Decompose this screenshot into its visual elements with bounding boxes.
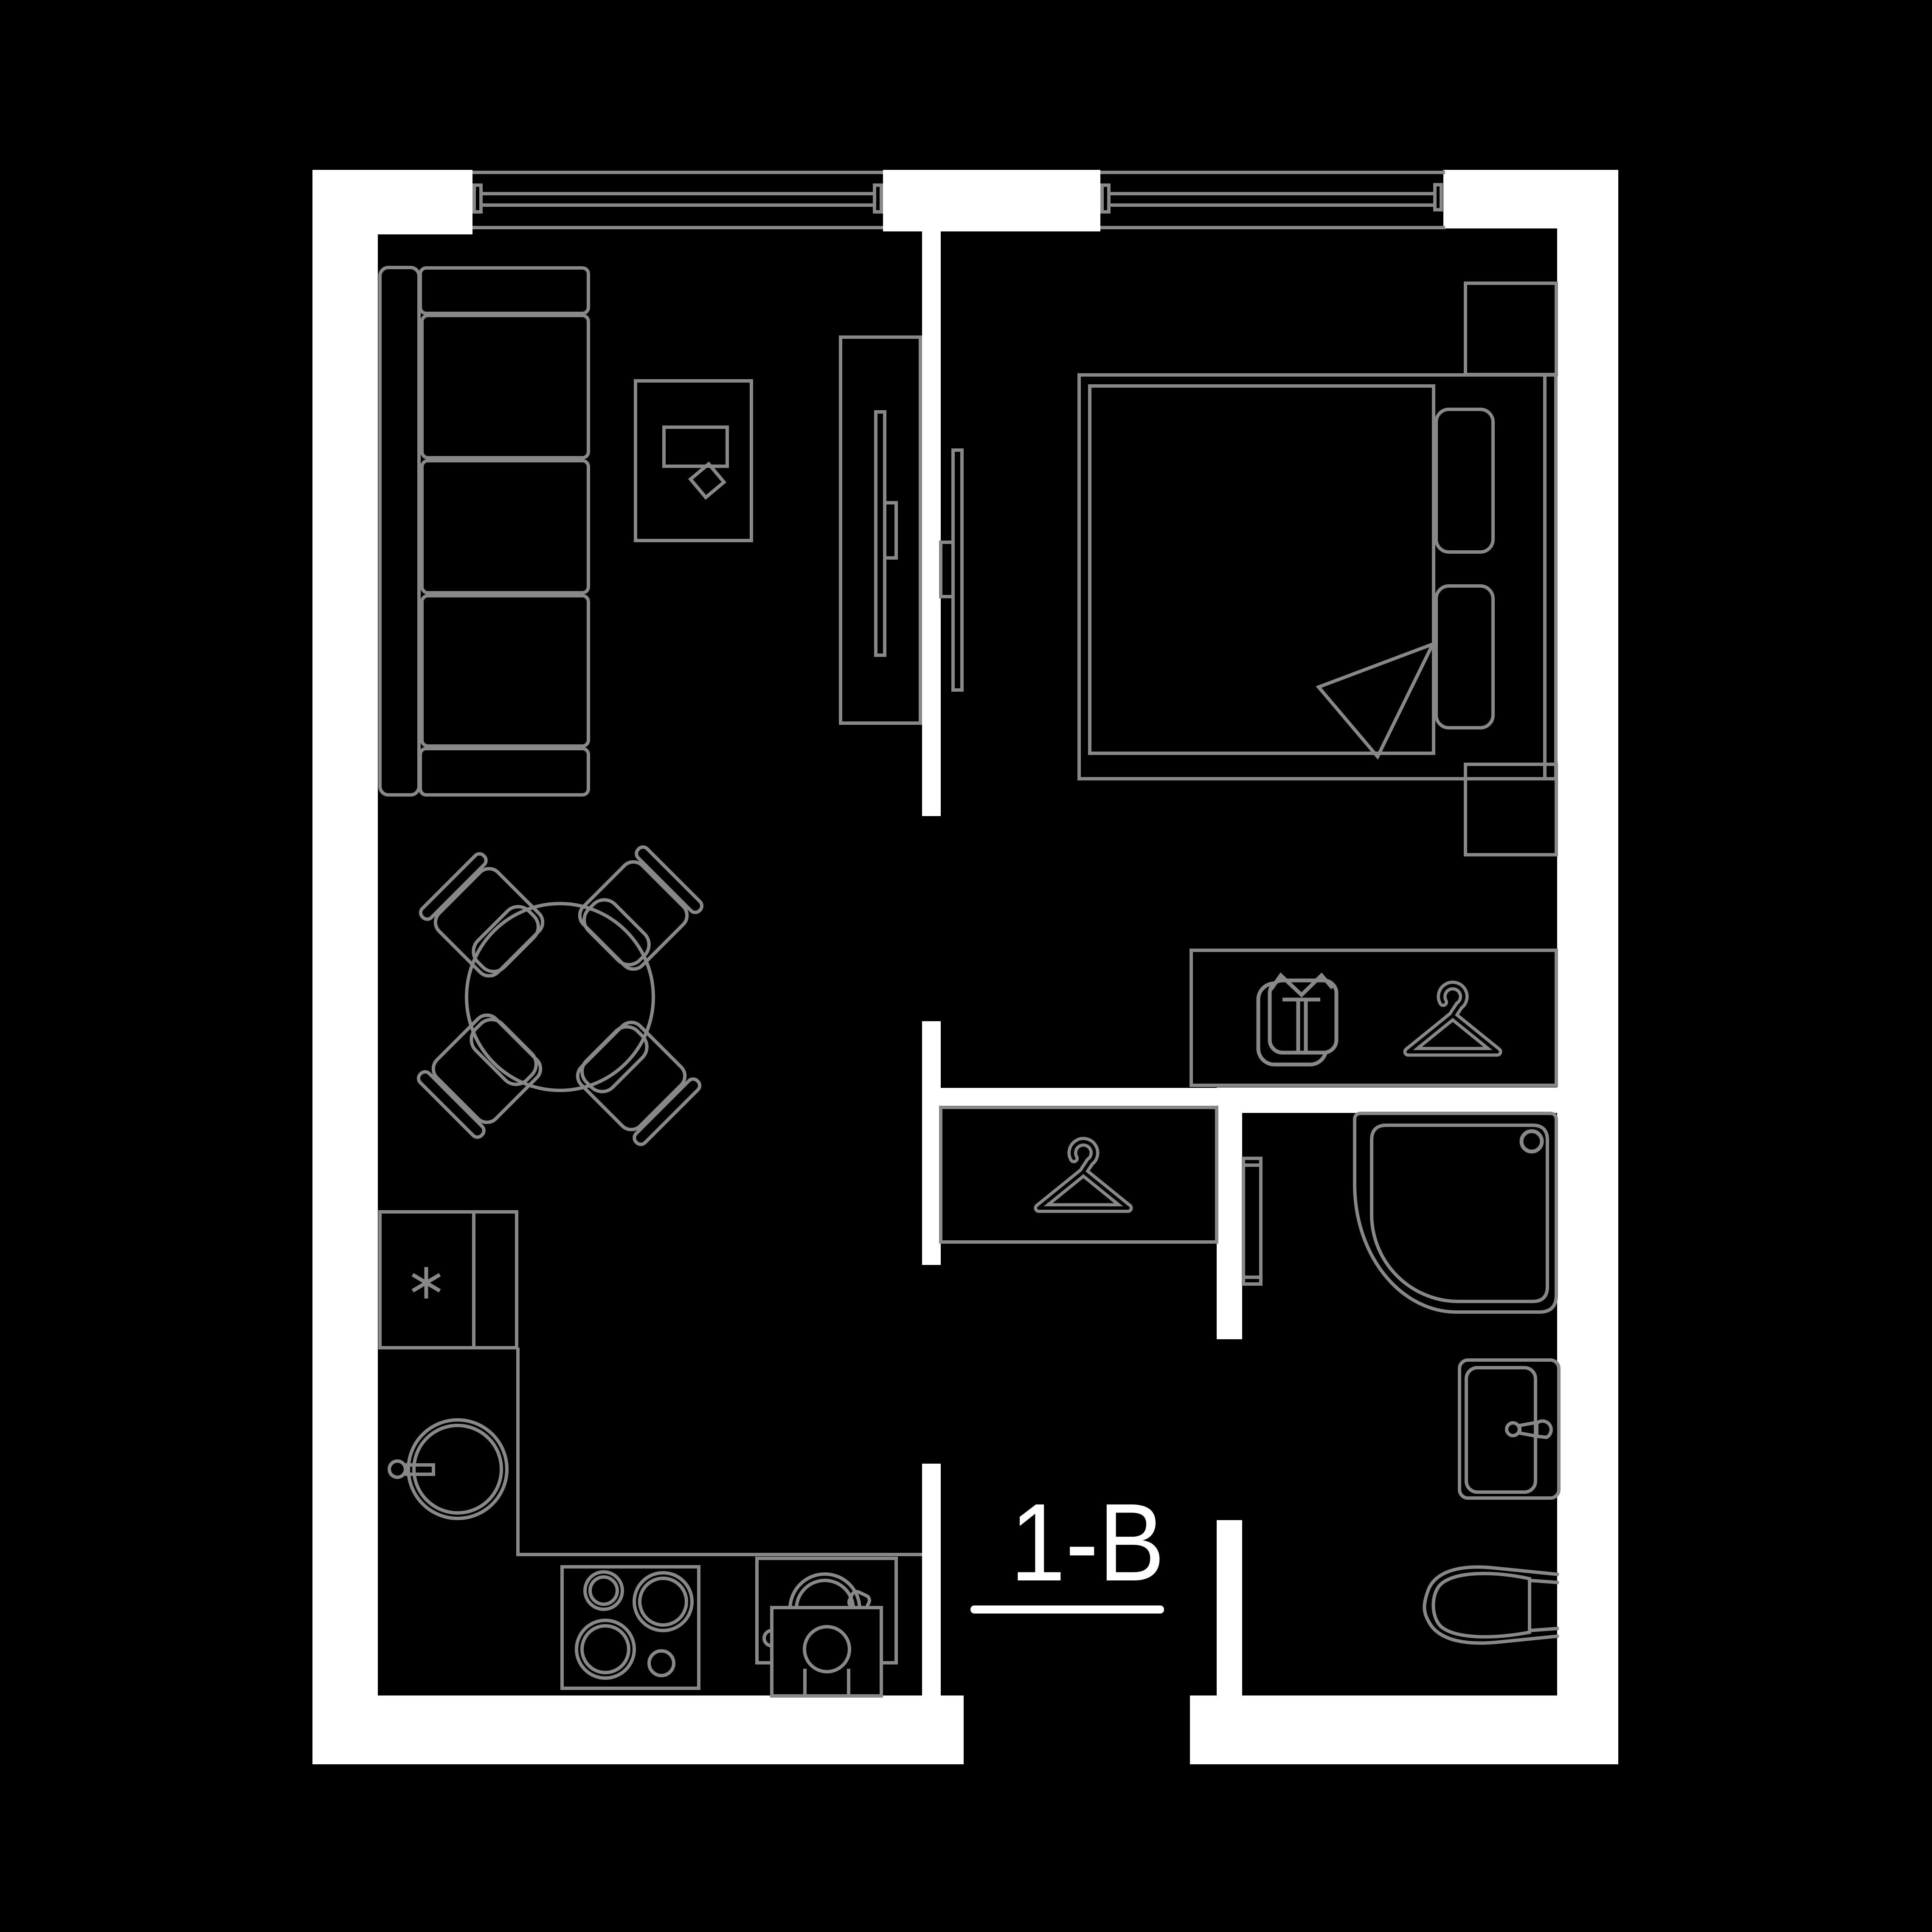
svg-text:1-B: 1-B xyxy=(1010,1481,1165,1604)
